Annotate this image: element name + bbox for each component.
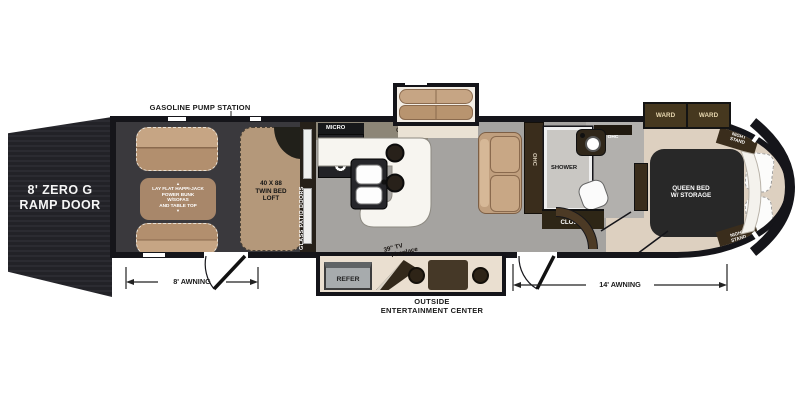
outside-label-line1: OUTSIDE [350, 297, 514, 306]
gas-station-label: GASOLINE PUMP STATION [116, 103, 284, 112]
partition-line [601, 212, 631, 231]
dim-arrow [250, 279, 258, 285]
outside-label-line2: ENTERTAINMENT CENTER [350, 306, 514, 315]
dim-arrow [126, 279, 134, 285]
bar-stool [387, 145, 404, 162]
bedroom-steps [556, 212, 593, 249]
linework-overlay [0, 0, 800, 400]
dim-arrow [719, 282, 727, 288]
outside-entertainment-label: OUTSIDE ENTERTAINMENT CENTER [350, 297, 514, 315]
entry-door-leaf [537, 256, 554, 289]
bed-comforter [741, 151, 761, 234]
dim-arrow [513, 282, 521, 288]
entry-door-swing [519, 256, 537, 289]
rear-awning-label: 8' AWNING [156, 277, 228, 286]
floorplan-canvas: 8' ZERO G RAMP DOOR ▲ LAY FLAT HAPPI-JAC… [0, 0, 800, 400]
bar-stool [387, 175, 404, 192]
sink-basin [356, 165, 382, 184]
main-awning-label: 14' AWNING [586, 280, 654, 289]
sink-basin [356, 187, 382, 204]
partition-line [637, 231, 668, 254]
